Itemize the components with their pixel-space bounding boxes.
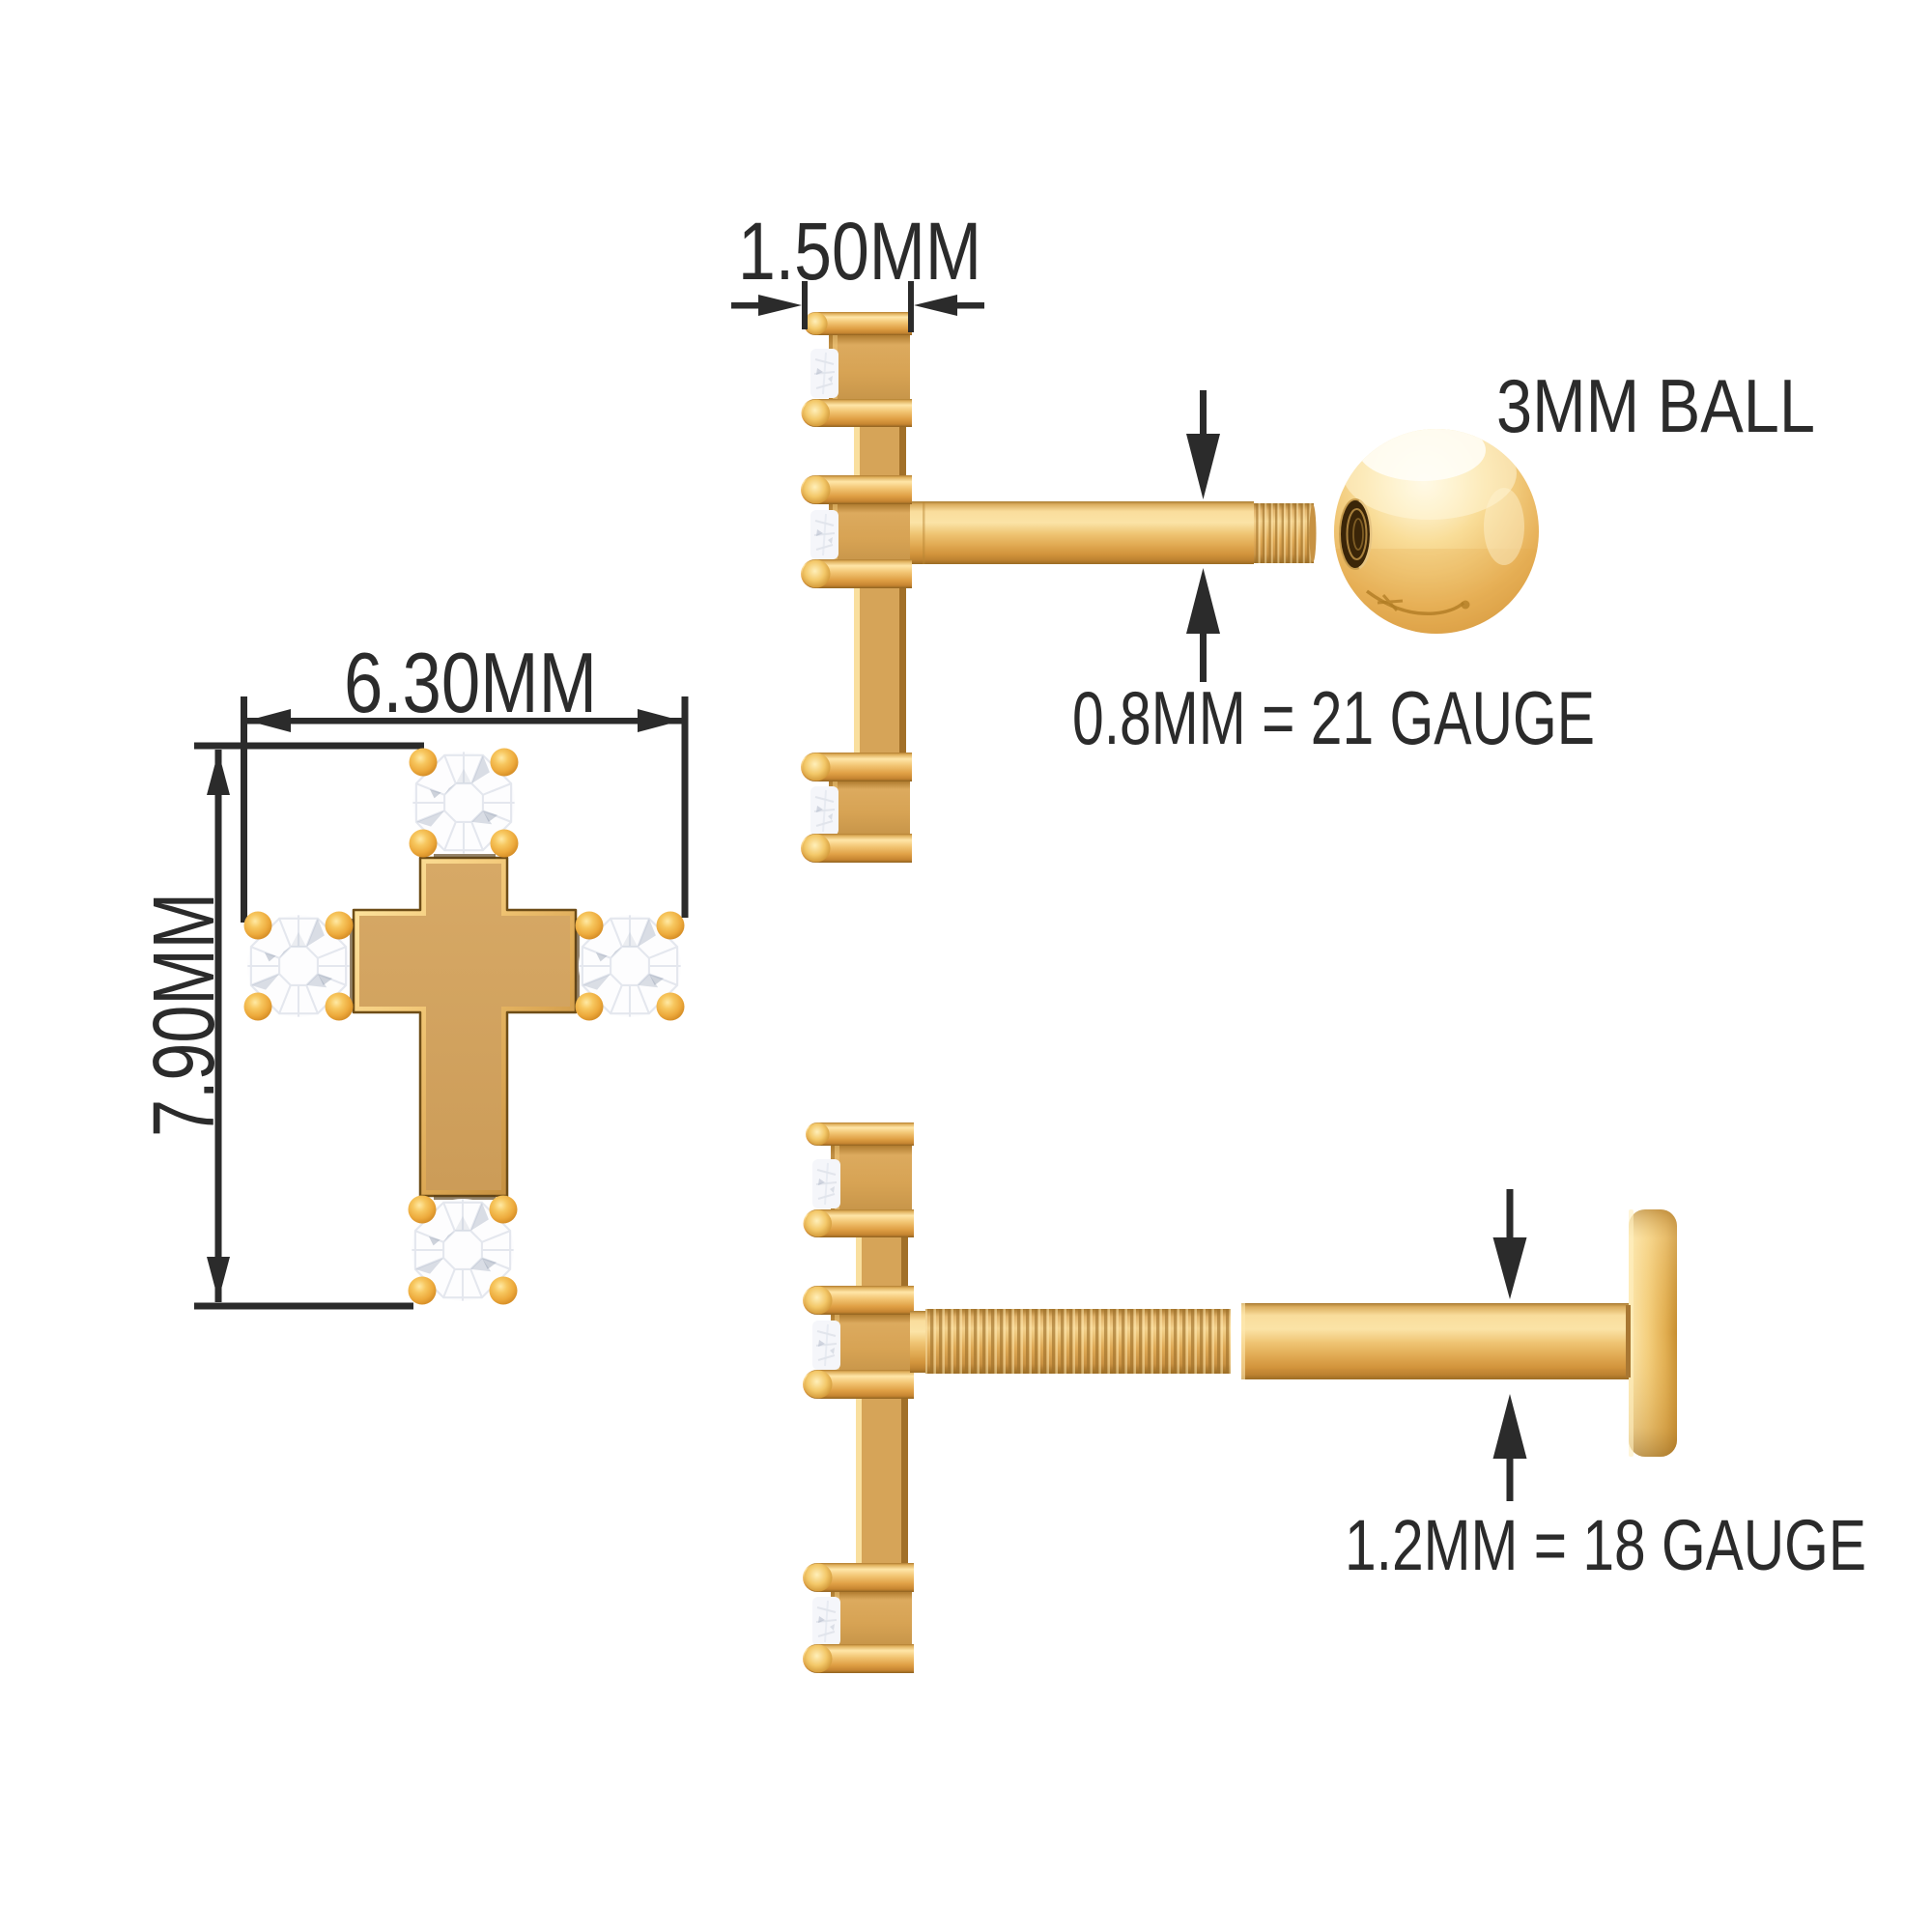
svg-text:1.50MM: 1.50MM [738, 206, 981, 297]
svg-text:1.2MM = 18 GAUGE: 1.2MM = 18 GAUGE [1345, 1505, 1866, 1585]
svg-text:0.8MM = 21 GAUGE: 0.8MM = 21 GAUGE [1072, 675, 1595, 760]
svg-text:6.30MM: 6.30MM [344, 635, 597, 730]
svg-text:3MM BALL: 3MM BALL [1496, 363, 1815, 448]
